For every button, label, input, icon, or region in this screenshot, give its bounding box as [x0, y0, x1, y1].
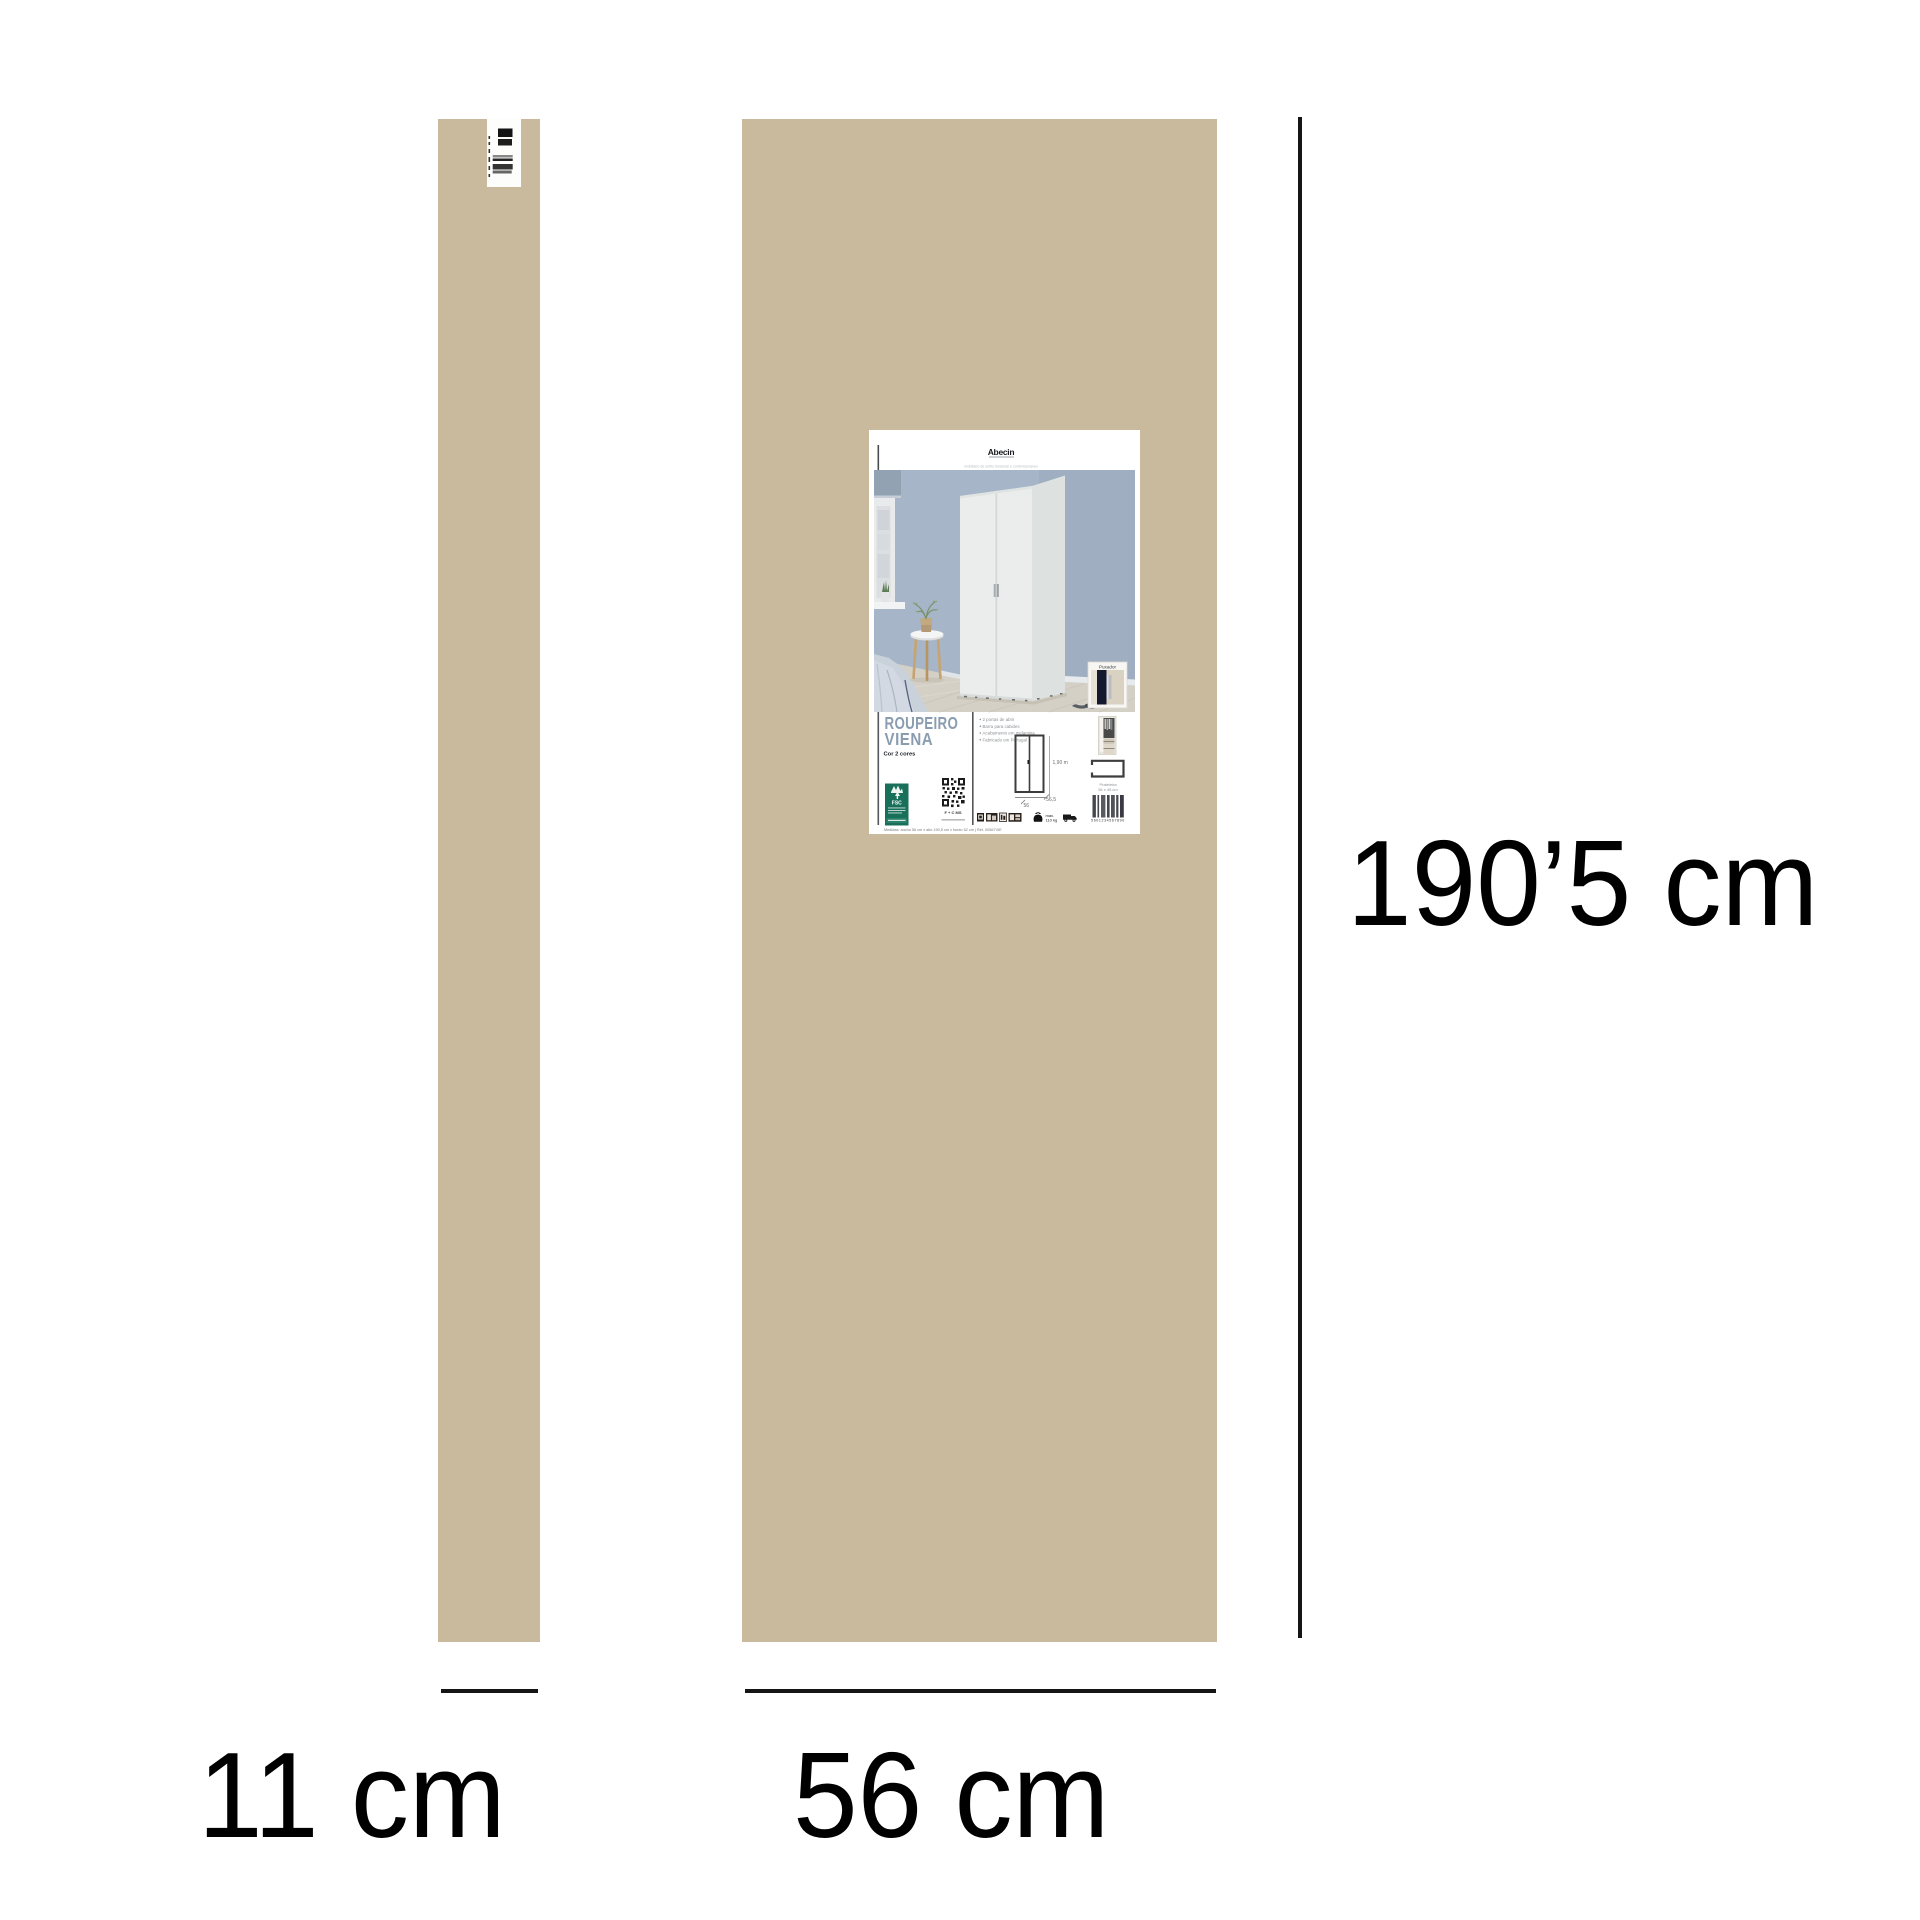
svg-text:Fabricado em Portugal: Fabricado em Portugal [983, 737, 1027, 742]
svg-text:56 x 45 cm: 56 x 45 cm [1098, 787, 1118, 792]
svg-text:FSC: FSC [892, 801, 902, 807]
svg-text:Barra para cabides: Barra para cabides [983, 724, 1021, 729]
svg-text:2 portas de abrir: 2 portas de abrir [983, 717, 1016, 722]
svg-text:110 kg: 110 kg [1046, 818, 1058, 823]
svg-text:Medidas: ancho 56 cm x alto 19: Medidas: ancho 56 cm x alto 190,5 cm x f… [884, 828, 1002, 832]
svg-text:VIENA: VIENA [885, 730, 934, 749]
svg-text:56,5: 56,5 [1046, 797, 1056, 803]
svg-text:mobiliario de estilo funcional: mobiliario de estilo funcional e contemp… [964, 465, 1038, 469]
svg-text:Abecin: Abecin [988, 447, 1015, 457]
svg-text:56: 56 [1024, 803, 1030, 809]
svg-text:F + C MS: F + C MS [944, 810, 961, 815]
svg-text:Cor 2 cores: Cor 2 cores [884, 752, 916, 758]
svg-text:5601234567890: 5601234567890 [1091, 819, 1125, 823]
svg-text:Puxador: Puxador [1099, 665, 1117, 670]
svg-text:1,90 m: 1,90 m [1053, 760, 1068, 766]
